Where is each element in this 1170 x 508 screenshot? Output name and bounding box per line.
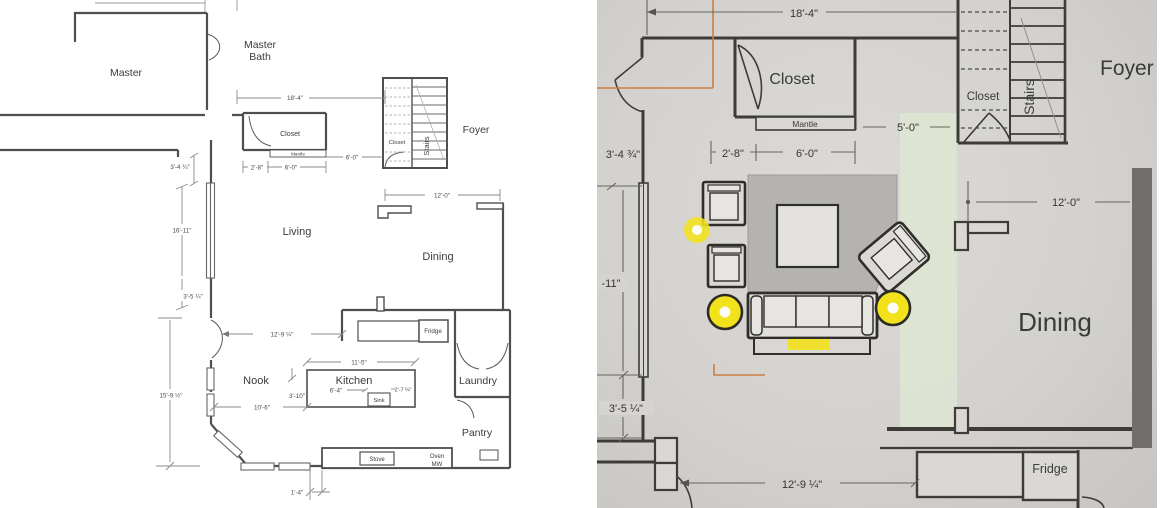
wall-stub — [955, 408, 968, 433]
room-laundry: Laundry — [459, 375, 498, 387]
room-master-bath-1: Master — [244, 39, 277, 51]
label-mw: MW — [432, 462, 443, 468]
armchair-left — [708, 245, 745, 287]
dim-12-9: 12'-9 ¼" — [270, 332, 293, 339]
dim-arrow-12-9 — [222, 331, 229, 337]
label-fridge: Fridge — [1032, 462, 1067, 476]
dim-3-4: 3'-4 ¾" — [606, 149, 640, 161]
room-living: Living — [283, 226, 312, 238]
dim-16-11: -11" — [602, 278, 621, 290]
highlight-rect-console — [788, 339, 830, 350]
label-stove: Stove — [369, 457, 385, 463]
room-pantry: Pantry — [462, 427, 493, 439]
dim-2-8: 2'-8" — [251, 165, 264, 172]
dim-5-0: 5'-0" — [897, 122, 919, 134]
dim-11-5: 11'-5" — [351, 360, 367, 367]
right-window — [639, 183, 648, 377]
label-sink: Sink — [373, 398, 384, 404]
dim-1-4: 1'-4" — [291, 490, 304, 497]
right-floorplan-photo: 18'-4" Closet Mantle Closet Stairs Foyer… — [597, 0, 1157, 508]
fridge-box — [1023, 452, 1078, 500]
dim-3-4: 3'-4 ¼" — [170, 164, 190, 171]
room-stairs-closet: Closet — [967, 91, 1000, 103]
label-fridge: Fridge — [424, 328, 442, 335]
floorplan-comparison-screenshot: Master Master Bath 18'-4" Closet Mantle … — [0, 0, 1170, 508]
room-stairs-closet: Closet — [389, 140, 406, 146]
highlight-dot-side-table-left — [708, 295, 742, 329]
dim-3-10: 3'-10" — [289, 393, 305, 400]
pantry-shelf — [480, 450, 498, 460]
dim-6-4: 6'-4" — [330, 388, 343, 395]
highlight-dot-side-table-right — [876, 291, 910, 325]
room-foyer: Foyer — [463, 124, 490, 136]
dining-sw-jamb — [377, 297, 384, 311]
dining-nw-stub — [378, 206, 411, 218]
dim-12-0: 12'-0" — [434, 193, 450, 200]
room-master-bath-2: Bath — [249, 51, 271, 63]
fridge-counter — [358, 321, 419, 341]
dim-6-0: 6'-0" — [796, 148, 818, 160]
dim-6-0: 6'-0" — [285, 165, 298, 172]
dim-12-0: 12'-0" — [1052, 197, 1080, 209]
left-dim-chips — [154, 162, 300, 400]
room-dining: Dining — [422, 251, 453, 263]
room-closet: Closet — [769, 71, 815, 88]
dim-3-5: 3'-5 ¼" — [183, 294, 203, 301]
right-floorplan-svg: 18'-4" Closet Mantle Closet Stairs Foyer… — [597, 0, 1157, 508]
dim-3-5: 3'-5 ¼" — [609, 403, 643, 415]
label-mantle: Mantle — [291, 152, 305, 157]
room-stairs: Stairs — [422, 136, 431, 155]
left-floorplan-svg: Master Master Bath 18'-4" Closet Mantle … — [0, 0, 560, 508]
room-master: Master — [110, 67, 143, 79]
label-oven: Oven — [430, 454, 444, 460]
room-nook: Nook — [243, 375, 269, 387]
room-closet: Closet — [280, 131, 300, 138]
dim-2-8: 2'-8" — [722, 148, 744, 160]
left-top-dim-remnant — [95, 0, 237, 12]
dim-16-11: 16'-11" — [172, 228, 191, 235]
dim-12-9: 12'-9 ¼" — [782, 479, 822, 491]
dining-stub-v — [955, 222, 968, 250]
dim-18-4: 18'-4" — [790, 8, 818, 20]
left-floorplan-image: Master Master Bath 18'-4" Closet Mantle … — [0, 0, 560, 508]
right-stairs — [961, 0, 1065, 143]
dim-dot-12-0 — [966, 200, 970, 204]
room-foyer: Foyer — [1100, 57, 1154, 80]
armchair-top-left — [703, 182, 745, 225]
room-dining: Dining — [1018, 307, 1092, 337]
dark-wall-bar — [1132, 168, 1152, 448]
dim-18-4: 18'-4" — [287, 95, 303, 102]
dim-15-9: 15'-9 ½" — [159, 392, 182, 400]
highlight-dot-chair — [684, 217, 710, 243]
left-walls — [0, 13, 510, 468]
dining-stub-h — [968, 222, 1008, 233]
dim-arrow-18-4 — [647, 9, 656, 16]
dim-2-7: 2'-7 ¼" — [395, 388, 412, 394]
dining-ne-stub — [477, 203, 503, 209]
coffee-table — [777, 205, 838, 267]
dim-6-0b: 6'-0" — [346, 155, 359, 162]
label-mantle: Mantle — [792, 119, 818, 129]
room-kitchen: Kitchen — [336, 375, 373, 387]
room-stairs: Stairs — [1021, 79, 1037, 115]
dim-10-6: 10'-6" — [254, 405, 270, 412]
